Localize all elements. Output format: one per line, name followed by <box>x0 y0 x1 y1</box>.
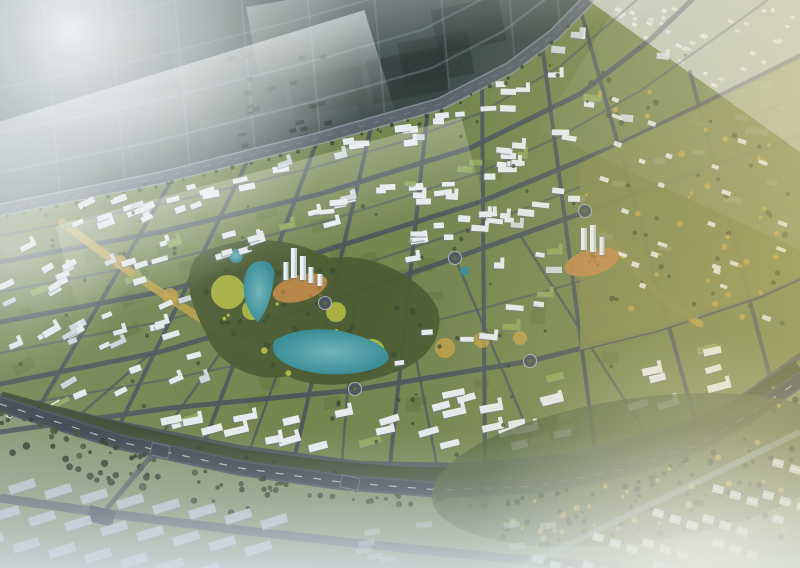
atmosphere-overlays <box>0 0 800 568</box>
aerial-city-masterplan-render <box>0 0 800 568</box>
render-canvas <box>0 0 800 568</box>
color-grade <box>0 0 800 568</box>
